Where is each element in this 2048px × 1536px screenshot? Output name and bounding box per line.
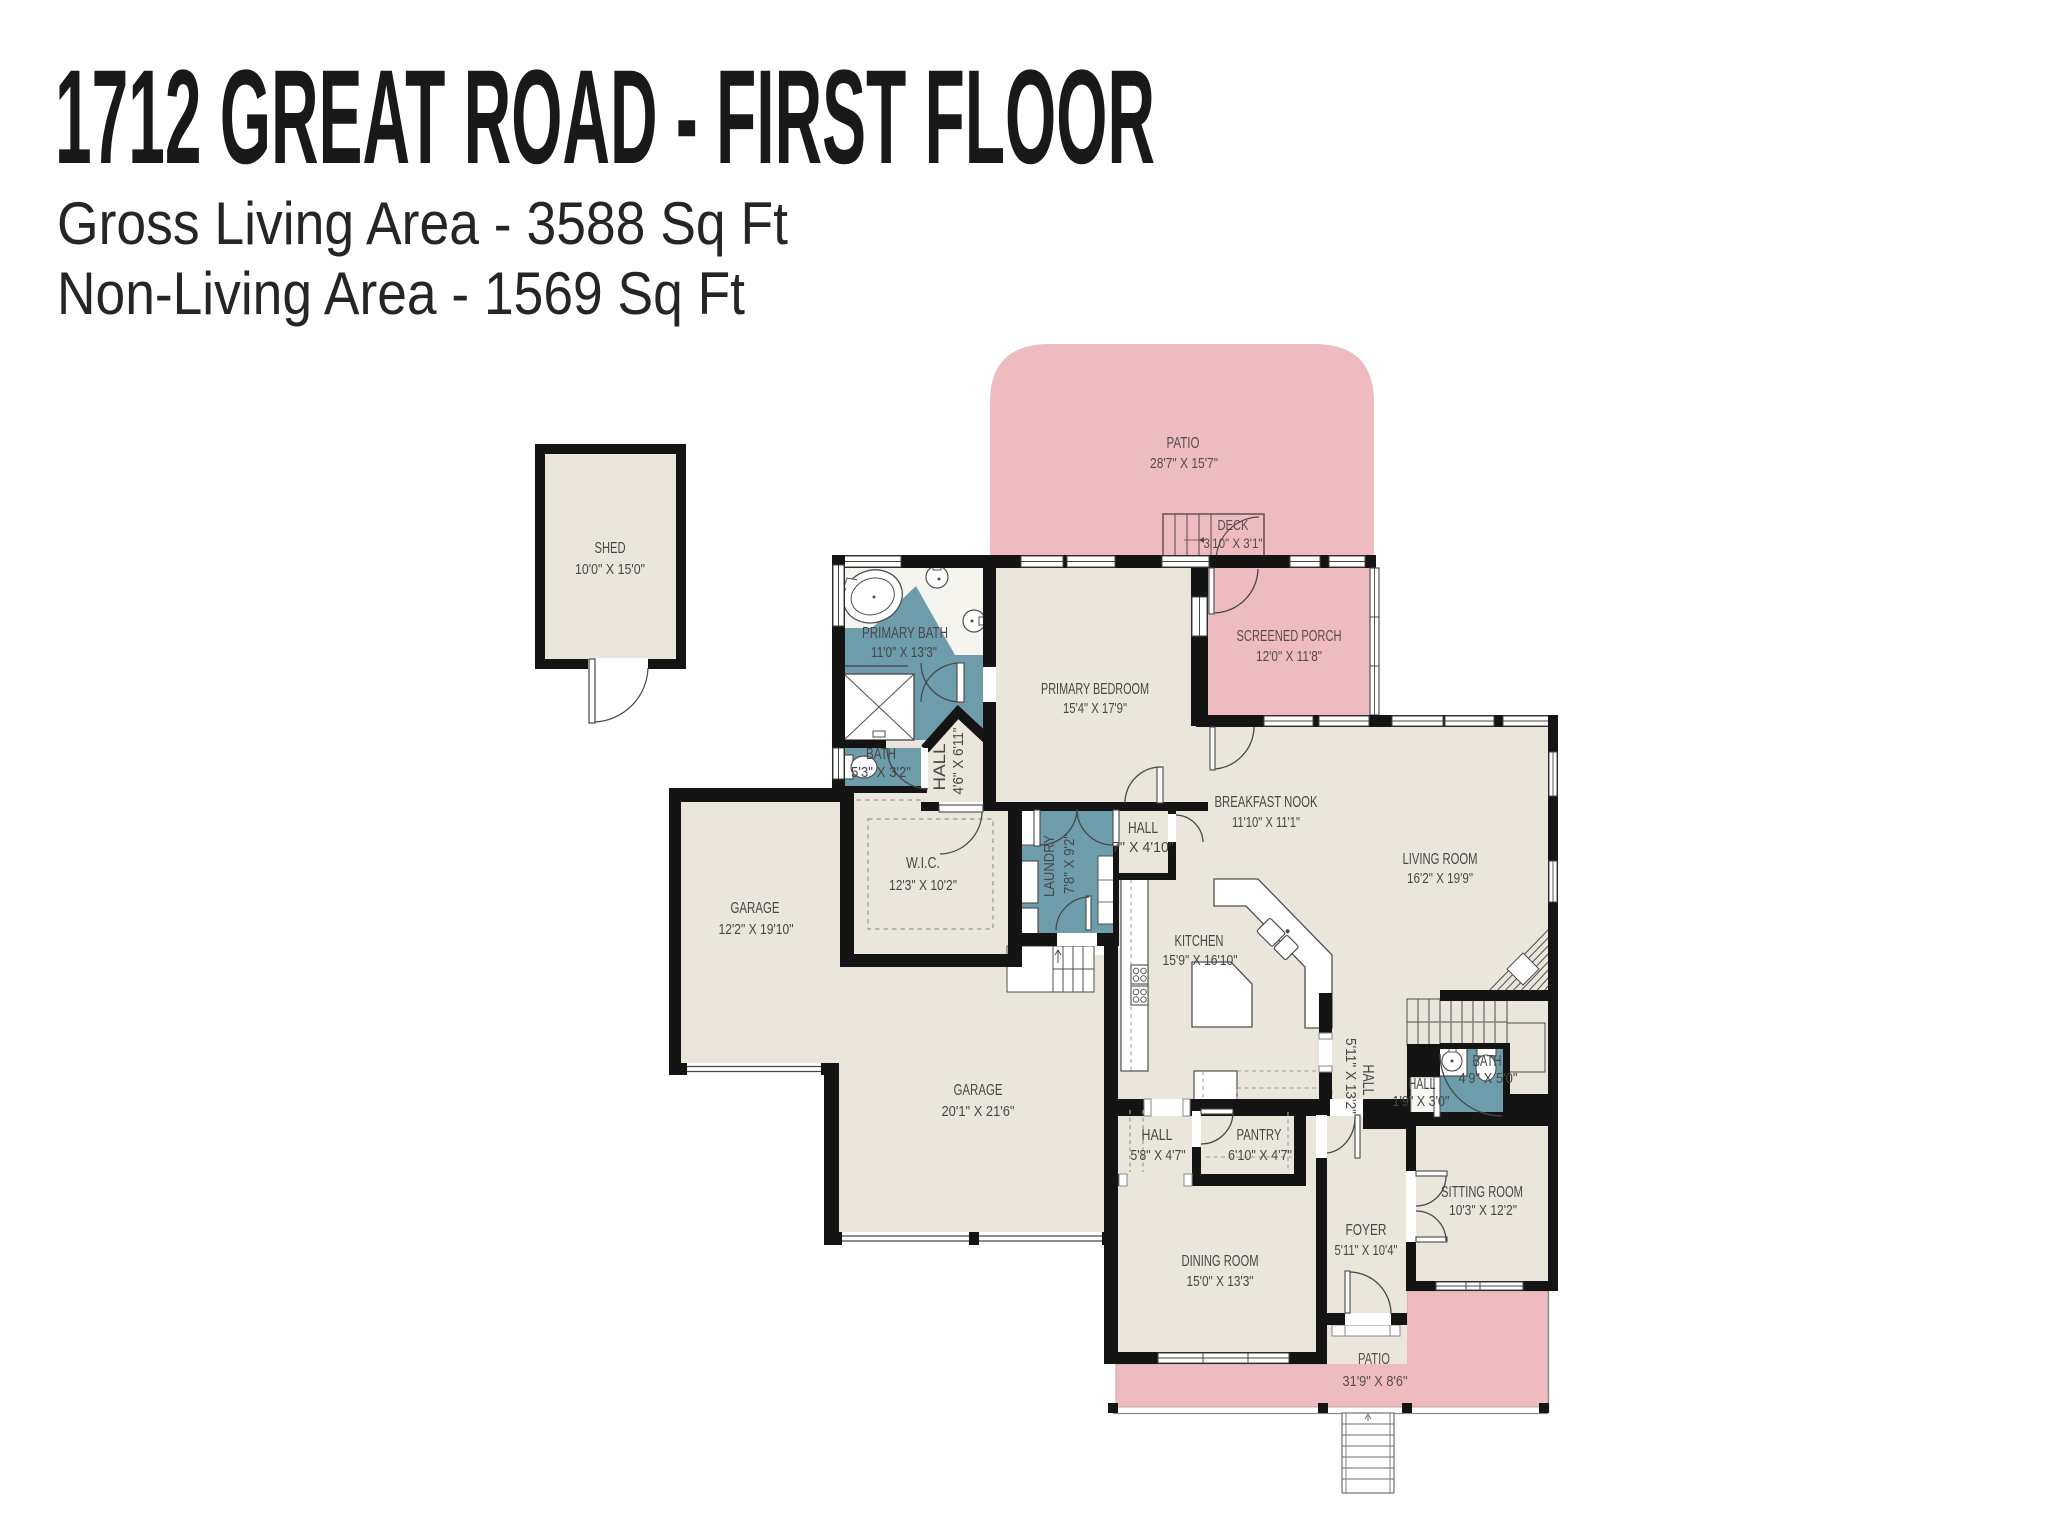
- svg-text:10'3" X 12'2": 10'3" X 12'2": [1449, 1203, 1517, 1219]
- svg-text:W.I.C.: W.I.C.: [906, 855, 940, 872]
- svg-text:SCREENED PORCH: SCREENED PORCH: [1237, 628, 1342, 645]
- svg-text:BREAKFAST NOOK: BREAKFAST NOOK: [1215, 794, 1318, 811]
- svg-text:FOYER: FOYER: [1346, 1222, 1387, 1239]
- svg-text:12'3" X 10'2": 12'3" X 10'2": [889, 878, 957, 894]
- svg-text:15'4" X 17'9": 15'4" X 17'9": [1063, 701, 1127, 717]
- svg-text:11'10" X 11'1": 11'10" X 11'1": [1232, 815, 1300, 831]
- svg-text:DINING ROOM: DINING ROOM: [1182, 1253, 1259, 1270]
- svg-text:LIVING ROOM: LIVING ROOM: [1403, 851, 1478, 868]
- svg-text:BATH: BATH: [1473, 1053, 1502, 1070]
- svg-text:LAUNDRY: LAUNDRY: [1041, 835, 1058, 897]
- svg-text:Gross Living Area - 3588 Sq Ft: Gross Living Area - 3588 Sq Ft: [57, 190, 788, 257]
- svg-text:5'11" X 10'4": 5'11" X 10'4": [1335, 1243, 1398, 1259]
- svg-text:16'2" X 19'9": 16'2" X 19'9": [1407, 871, 1473, 887]
- svg-text:11'0" X 13'3": 11'0" X 13'3": [871, 645, 937, 661]
- svg-text:Non-Living Area - 1569 Sq Ft: Non-Living Area - 1569 Sq Ft: [57, 260, 745, 327]
- svg-text:PATIO: PATIO: [1358, 1351, 1390, 1368]
- svg-text:5'3" X 3'2": 5'3" X 3'2": [851, 765, 911, 781]
- svg-text:6'10" X 4'7": 6'10" X 4'7": [1228, 1148, 1292, 1164]
- svg-text:28'7" X 15'7": 28'7" X 15'7": [1150, 456, 1218, 472]
- svg-text:GARAGE: GARAGE: [954, 1082, 1003, 1099]
- svg-text:1712 GREAT ROAD - FIRST FLOOR: 1712 GREAT ROAD - FIRST FLOOR: [55, 43, 1155, 192]
- svg-text:10'0" X 15'0": 10'0" X 15'0": [575, 562, 645, 578]
- svg-text:12'2" X 19'10": 12'2" X 19'10": [719, 922, 794, 938]
- svg-text:SHED: SHED: [595, 540, 626, 557]
- svg-text:15'0" X 13'3": 15'0" X 13'3": [1187, 1274, 1254, 1290]
- svg-text:PATIO: PATIO: [1167, 435, 1200, 452]
- svg-text:HALL: HALL: [1409, 1076, 1436, 1093]
- svg-text:BATH: BATH: [866, 746, 896, 763]
- svg-text:PRIMARY BEDROOM: PRIMARY BEDROOM: [1041, 681, 1149, 698]
- svg-text:PRIMARY BATH: PRIMARY BATH: [862, 625, 948, 642]
- svg-text:7'8" X 9'2": 7'8" X 9'2": [1062, 834, 1078, 894]
- svg-text:HALL: HALL: [1142, 1127, 1173, 1144]
- svg-text:5'8" X 4'7": 5'8" X 4'7": [1131, 1148, 1186, 1164]
- svg-text:GARAGE: GARAGE: [731, 900, 780, 917]
- svg-text:HALL: HALL: [930, 744, 949, 791]
- svg-text:7" X 4'10": 7" X 4'10": [1112, 840, 1174, 856]
- svg-text:PANTRY: PANTRY: [1237, 1127, 1282, 1144]
- svg-text:3'10" X 3'1": 3'10" X 3'1": [1204, 535, 1263, 551]
- svg-text:20'1" X 21'6": 20'1" X 21'6": [942, 1104, 1015, 1120]
- svg-text:HALL: HALL: [1128, 820, 1158, 837]
- svg-text:SITTING ROOM: SITTING ROOM: [1441, 1184, 1523, 1201]
- svg-text:31'9" X 8'6": 31'9" X 8'6": [1343, 1374, 1408, 1390]
- svg-text:HALL: HALL: [1359, 1065, 1376, 1096]
- svg-text:DECK: DECK: [1218, 517, 1249, 534]
- svg-text:12'0" X 11'8": 12'0" X 11'8": [1256, 649, 1322, 665]
- svg-text:4'6" X 6'11": 4'6" X 6'11": [951, 728, 967, 795]
- svg-text:KITCHEN: KITCHEN: [1175, 933, 1224, 950]
- svg-text:1'9" X 3'0": 1'9" X 3'0": [1393, 1094, 1450, 1110]
- svg-text:5'11" X 13'2": 5'11" X 13'2": [1342, 1038, 1358, 1114]
- svg-text:15'9" X 16'10": 15'9" X 16'10": [1163, 953, 1238, 969]
- svg-text:4'9" X 5'0": 4'9" X 5'0": [1459, 1071, 1518, 1087]
